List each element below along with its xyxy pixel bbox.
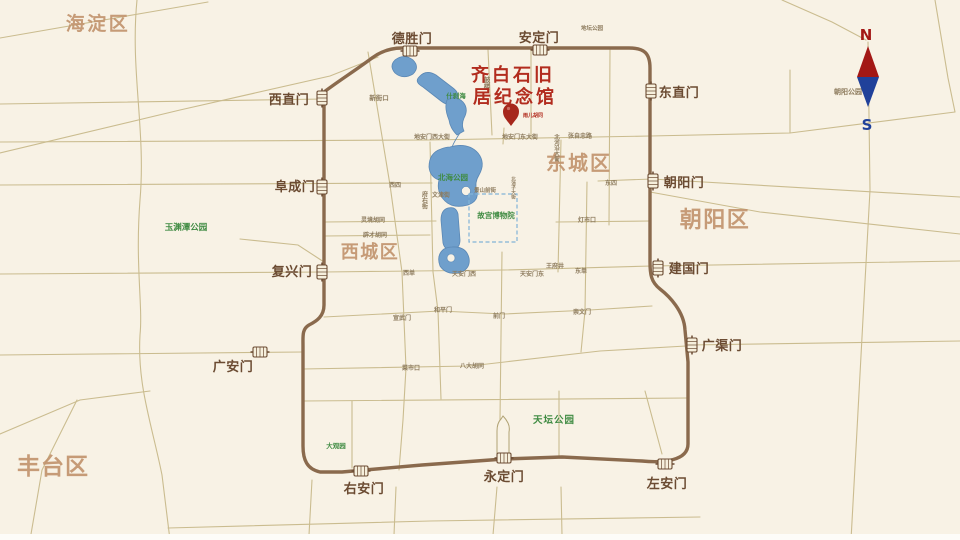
park-label-ditan: 地坛公园 <box>581 24 604 32</box>
street-label-qianmen: 前门 <box>493 312 505 320</box>
park-label-shichahai: 什刹海 <box>446 91 466 100</box>
gate-label-fuxingmen: 复兴门 <box>271 264 313 280</box>
nanhai-island <box>447 254 455 262</box>
gate-icon-andingmen <box>531 45 550 55</box>
park-label-tiantan: 天坛公园 <box>533 414 575 426</box>
street-label-xuanwumen: 宣武门 <box>393 314 411 322</box>
park-label-chaoyangpark: 朝阳公园 <box>834 87 862 96</box>
gate-icon-zuoanmen <box>656 459 675 469</box>
street-label-caishikou: 菜市口 <box>401 364 420 372</box>
gate-label-youanmen: 右安门 <box>343 481 385 497</box>
street-label-dongsi: 东四 <box>605 179 617 187</box>
bottom-margin <box>0 534 960 540</box>
pin-street-label: 雨儿胡同 <box>523 112 543 119</box>
gate-label-andingmen: 安定门 <box>519 30 560 46</box>
gate-label-jianguomen: 建国门 <box>669 261 710 277</box>
district-label-chaoyang: 朝阳区 <box>680 207 751 233</box>
street-label-xisi: 西四 <box>389 181 401 189</box>
gate-icon-jianguomen <box>653 259 663 278</box>
district-label-fengtai: 丰台区 <box>17 453 89 480</box>
gate-icon-guanganmen <box>251 347 270 357</box>
gate-icon-xizhimen <box>317 89 327 108</box>
street-label-chongwenmen: 崇文门 <box>573 308 591 316</box>
street-label-picai: 辟才胡同 <box>363 231 387 239</box>
memorial-title-line1: 齐白石旧 <box>471 64 555 86</box>
street-label-tiananmen-west: 天安门西 <box>452 270 476 278</box>
gate-icon-chaoyangmen <box>648 172 658 191</box>
street-label-lingjing: 灵境胡同 <box>360 216 385 224</box>
park-label-gugong: 故宫博物院 <box>477 210 515 220</box>
gate-label-fuchengmen: 阜成门 <box>275 179 316 195</box>
street-label-fuyou: 府右街 <box>421 190 429 210</box>
gate-icon-guangqumen <box>687 336 697 355</box>
district-label-xicheng: 西城区 <box>341 241 400 263</box>
gate-label-guangqumen: 广渠门 <box>702 338 743 354</box>
street-label-dianmen-west: 地安门西大街 <box>414 133 450 141</box>
lake-xihai <box>392 57 417 77</box>
compass-south-label: S <box>862 116 873 134</box>
park-label-beihai: 北海公园 <box>438 172 468 182</box>
lake-zhonghai <box>441 208 460 251</box>
street-label-xinjiekou: 新街口 <box>369 93 389 102</box>
yongdingmen-tower <box>497 416 509 456</box>
gate-label-xizhimen: 西直门 <box>269 92 310 108</box>
beijing-map-canvas[interactable]: 海淀区 东城区 西城区 朝阳区 丰台区 德胜门 安定门 西直门 东直门 阜成门 … <box>0 0 960 540</box>
map-stage: 海淀区 东城区 西城区 朝阳区 丰台区 德胜门 安定门 西直门 东直门 阜成门 … <box>0 0 960 540</box>
gate-icon-deshengmen <box>401 46 420 56</box>
street-label-dengshikou: 灯市口 <box>578 216 596 224</box>
street-label-xidan: 西单 <box>403 269 415 277</box>
gate-label-yongdingmen: 永定门 <box>483 469 525 485</box>
gate-icon-fuxingmen <box>317 263 327 282</box>
gate-icon-yongdingmen <box>495 453 514 463</box>
street-label-dianmen-east: 地安门东大街 <box>502 133 538 141</box>
compass-north-label: N <box>860 26 873 44</box>
street-label-dongdan: 东单 <box>575 267 587 275</box>
pin-highlight <box>507 107 510 110</box>
gate-icon-dongzhimen <box>646 82 656 101</box>
gate-icon-fuchengmen <box>317 178 327 197</box>
street-label-badahutong: 八大胡同 <box>459 362 484 370</box>
street-label-wenjin: 文津街 <box>431 191 450 199</box>
street-label-hepingmen: 和平门 <box>433 306 452 314</box>
gate-label-dongzhimen: 东直门 <box>659 85 700 101</box>
gate-label-guanganmen: 广安门 <box>213 359 254 375</box>
street-label-tiananmen-east: 天安门东 <box>520 270 544 278</box>
gate-label-zuoanmen: 左安门 <box>647 476 688 492</box>
street-label-jingshanqian: 景山前街 <box>473 186 497 194</box>
street-label-zhangzizhong: 张自忠路 <box>568 132 593 140</box>
park-label-yuyuantan: 玉渊潭公园 <box>165 222 208 233</box>
park-label-daguanyuan: 大观园 <box>326 441 346 450</box>
gate-label-deshengmen: 德胜门 <box>392 31 433 47</box>
gate-icon-youanmen <box>352 466 371 476</box>
district-label-haidian: 海淀区 <box>66 12 131 35</box>
gate-label-chaoyangmen: 朝阳门 <box>664 175 705 191</box>
street-label-wangfujing: 王府井 <box>546 262 564 270</box>
